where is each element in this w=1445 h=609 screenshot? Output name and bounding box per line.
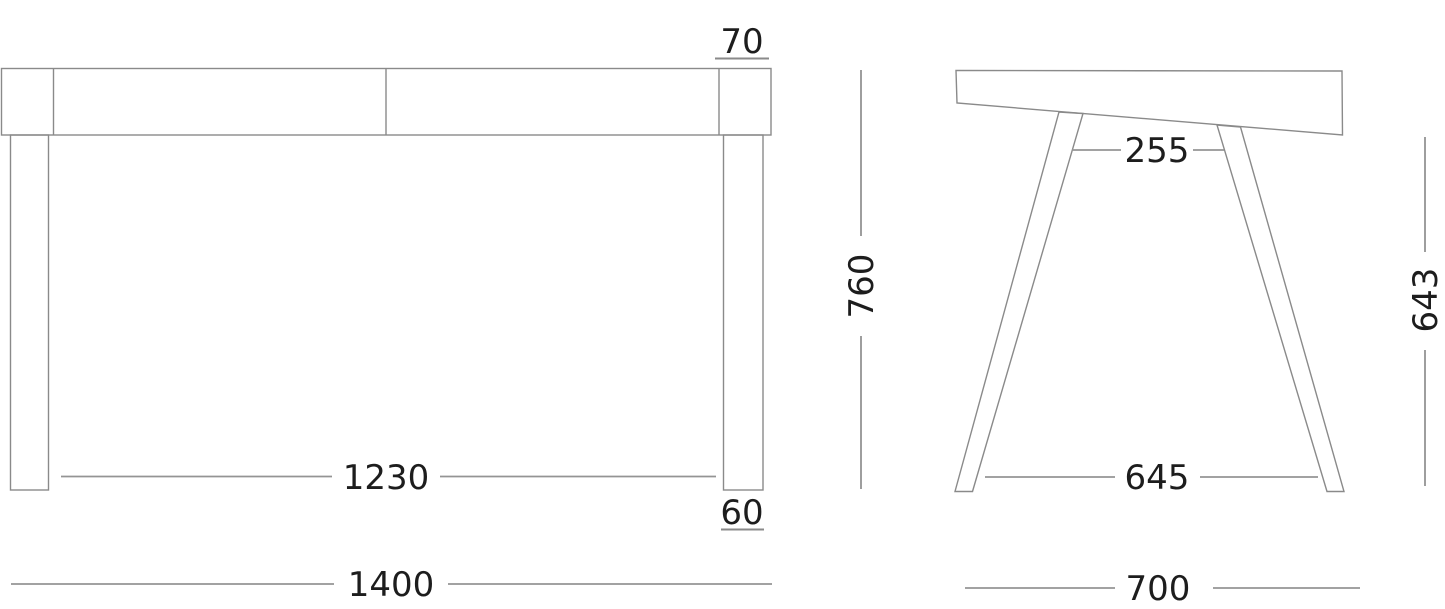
front-view: 70 1230 60 1400 760 bbox=[2, 22, 883, 605]
technical-drawing-canvas: 70 1230 60 1400 760 bbox=[0, 0, 1445, 609]
dim-label-underside-height: 643 bbox=[1406, 268, 1445, 333]
dim-label-overall-width: 1400 bbox=[348, 565, 435, 605]
side-back-leg bbox=[1217, 125, 1344, 492]
dim-label-top-gap: 255 bbox=[1125, 131, 1190, 171]
side-tabletop bbox=[956, 71, 1343, 136]
dim-label-inner-span: 1230 bbox=[343, 458, 430, 498]
side-view: 255 645 700 643 bbox=[955, 71, 1445, 609]
dim-label-bottom-span: 645 bbox=[1125, 458, 1190, 498]
dim-label-top-thickness: 70 bbox=[720, 22, 763, 62]
front-left-leg bbox=[11, 135, 49, 490]
side-front-leg bbox=[955, 112, 1083, 492]
dim-label-leg-width: 60 bbox=[720, 493, 763, 533]
dim-label-overall-depth: 700 bbox=[1126, 569, 1191, 609]
drawing-svg: 70 1230 60 1400 760 bbox=[0, 0, 1445, 609]
front-right-leg bbox=[724, 135, 764, 490]
dim-label-overall-height: 760 bbox=[842, 254, 882, 319]
